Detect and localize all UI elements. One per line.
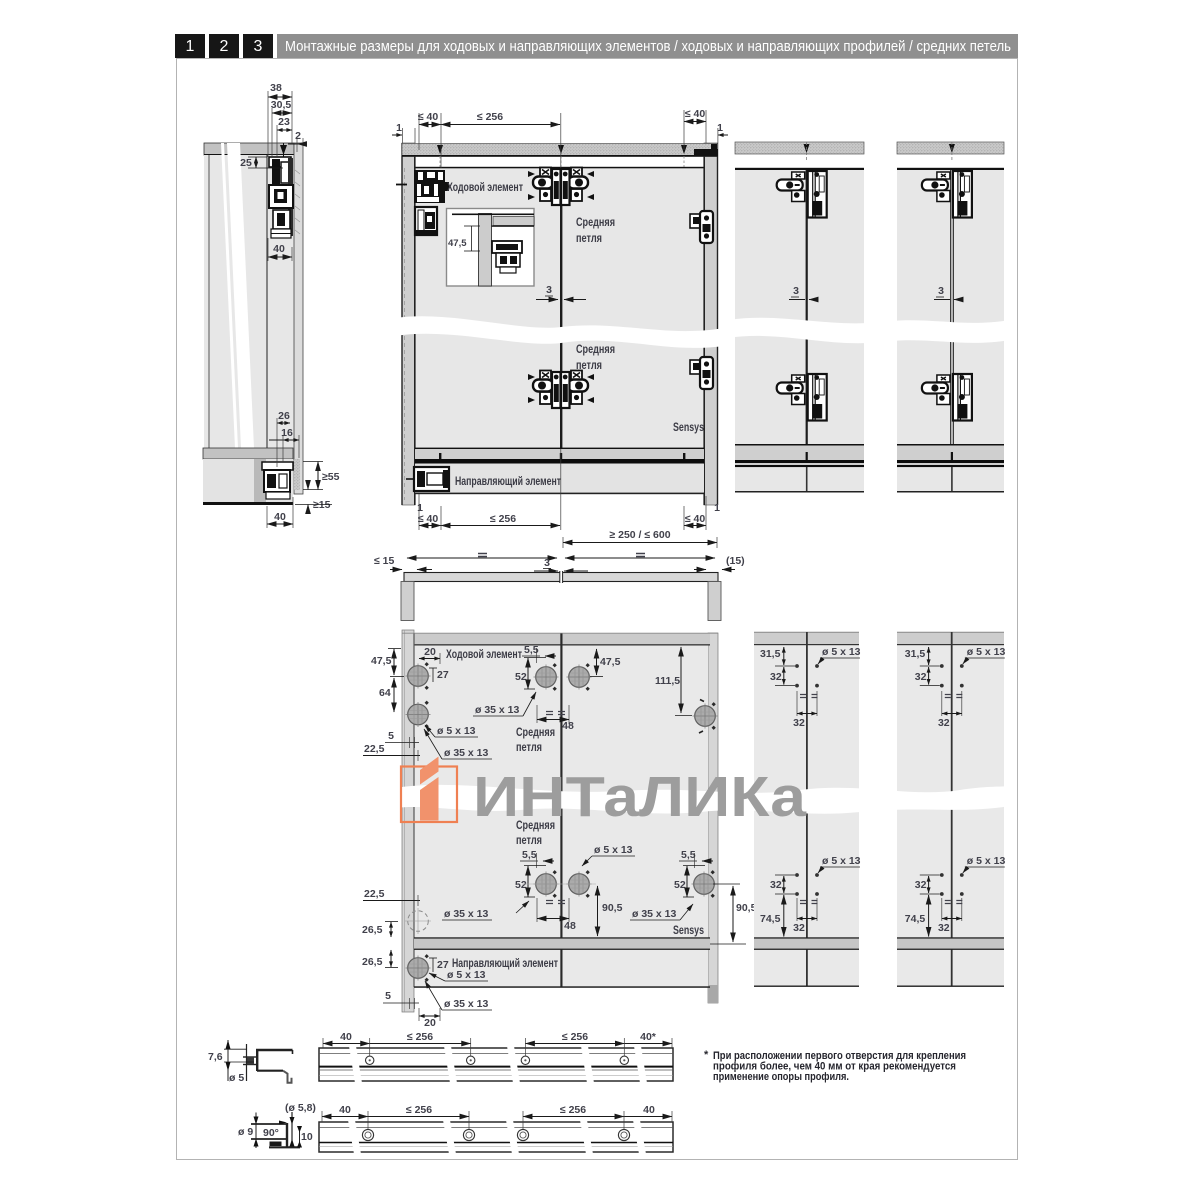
svg-text:≤ 256: ≤ 256 bbox=[407, 1031, 433, 1043]
svg-text:26,5: 26,5 bbox=[362, 956, 383, 968]
svg-text:47,5: 47,5 bbox=[371, 655, 392, 667]
svg-text:40: 40 bbox=[340, 1031, 352, 1043]
svg-text:22,5: 22,5 bbox=[364, 888, 385, 900]
svg-text:≤ 256: ≤ 256 bbox=[477, 111, 503, 123]
svg-text:7,6: 7,6 bbox=[208, 1051, 223, 1063]
svg-text:≤ 40: ≤ 40 bbox=[685, 513, 706, 525]
svg-text:ø 35 x 13: ø 35 x 13 bbox=[444, 747, 489, 759]
svg-text:ø 5: ø 5 bbox=[229, 1072, 244, 1084]
svg-text:3: 3 bbox=[544, 557, 550, 569]
svg-text:25: 25 bbox=[240, 157, 252, 169]
svg-text:52: 52 bbox=[674, 879, 686, 891]
svg-text:Средняя: Средняя bbox=[576, 215, 615, 229]
svg-text:90,5: 90,5 bbox=[602, 902, 623, 914]
svg-text:петля: петля bbox=[516, 740, 542, 754]
svg-text:22,5: 22,5 bbox=[364, 743, 385, 755]
svg-text:40: 40 bbox=[274, 511, 286, 523]
svg-text:петля: петля bbox=[516, 833, 542, 847]
svg-text:26,5: 26,5 bbox=[362, 924, 383, 936]
svg-text:90,5: 90,5 bbox=[736, 902, 757, 914]
svg-text:ø 9: ø 9 bbox=[238, 1126, 253, 1138]
svg-text:47,5: 47,5 bbox=[600, 656, 621, 668]
svg-text:20: 20 bbox=[424, 646, 436, 658]
svg-text:Sensys: Sensys bbox=[673, 420, 704, 434]
svg-text:3: 3 bbox=[546, 284, 552, 296]
svg-text:петля: петля bbox=[576, 231, 602, 245]
svg-text:≥55: ≥55 bbox=[322, 471, 340, 483]
svg-text:ø 35 x 13: ø 35 x 13 bbox=[444, 998, 489, 1010]
svg-text:≤ 40: ≤ 40 bbox=[418, 111, 439, 123]
svg-text:ø 5 x 13: ø 5 x 13 bbox=[447, 969, 486, 981]
svg-text:≤ 256: ≤ 256 bbox=[562, 1031, 588, 1043]
svg-text:Средняя: Средняя bbox=[576, 342, 615, 356]
svg-text:≤ 15: ≤ 15 bbox=[374, 555, 395, 567]
svg-text:(ø 5,8): (ø 5,8) bbox=[285, 1102, 316, 1114]
svg-text:петля: петля bbox=[576, 358, 602, 372]
svg-text:40: 40 bbox=[339, 1104, 351, 1116]
svg-text:ø 35 x 13: ø 35 x 13 bbox=[444, 908, 489, 920]
svg-text:2: 2 bbox=[220, 38, 229, 55]
svg-text:111,5: 111,5 bbox=[655, 675, 680, 687]
svg-text:ø 35 x 13: ø 35 x 13 bbox=[632, 908, 677, 920]
svg-text:Монтажные размеры для ходовых: Монтажные размеры для ходовых и направля… bbox=[285, 39, 1011, 55]
svg-text:2: 2 bbox=[295, 130, 301, 142]
svg-text:1: 1 bbox=[396, 122, 402, 134]
svg-text:38: 38 bbox=[270, 82, 282, 94]
svg-text:27: 27 bbox=[437, 669, 449, 681]
svg-text:20: 20 bbox=[424, 1017, 436, 1029]
svg-text:≤ 256: ≤ 256 bbox=[490, 513, 516, 525]
svg-text:47,5: 47,5 bbox=[448, 238, 467, 249]
svg-text:Средняя: Средняя bbox=[516, 725, 555, 739]
svg-text:5: 5 bbox=[388, 730, 394, 742]
svg-text:ИНТаЛИКа: ИНТаЛИКа bbox=[473, 765, 807, 829]
svg-text:Ходовой элемент: Ходовой элемент bbox=[447, 180, 523, 194]
svg-text:ø 5 x 13: ø 5 x 13 bbox=[594, 844, 633, 856]
svg-text:Sensys: Sensys bbox=[673, 923, 704, 937]
svg-text:Ходовой элемент: Ходовой элемент bbox=[446, 647, 522, 661]
svg-text:1: 1 bbox=[714, 502, 720, 514]
svg-text:3: 3 bbox=[254, 38, 263, 55]
svg-text:90°: 90° bbox=[263, 1127, 279, 1139]
svg-text:5,5: 5,5 bbox=[681, 849, 696, 861]
svg-text:3: 3 bbox=[793, 285, 799, 297]
svg-text:1: 1 bbox=[186, 38, 195, 55]
svg-text:5,5: 5,5 bbox=[522, 849, 537, 861]
svg-text:применение опоры профиля.: применение опоры профиля. bbox=[713, 1071, 849, 1083]
svg-text:ø 5 x 13: ø 5 x 13 bbox=[437, 725, 476, 737]
svg-text:52: 52 bbox=[515, 879, 527, 891]
svg-text:≤ 256: ≤ 256 bbox=[560, 1104, 586, 1116]
svg-text:23: 23 bbox=[278, 116, 290, 128]
svg-text:ø 35 x 13: ø 35 x 13 bbox=[475, 704, 520, 716]
svg-text:≥15: ≥15 bbox=[313, 499, 331, 511]
svg-text:3: 3 bbox=[938, 285, 944, 297]
svg-text:10: 10 bbox=[301, 1131, 313, 1143]
svg-text:Направляющий элемент: Направляющий элемент bbox=[455, 474, 561, 488]
svg-text:40*: 40* bbox=[640, 1031, 657, 1043]
svg-text:Направляющий элемент: Направляющий элемент bbox=[452, 956, 558, 970]
svg-text:5: 5 bbox=[385, 990, 391, 1002]
svg-text:≤ 40: ≤ 40 bbox=[418, 513, 439, 525]
svg-text:(15): (15) bbox=[726, 555, 745, 567]
svg-text:40: 40 bbox=[273, 243, 285, 255]
svg-text:≤ 256: ≤ 256 bbox=[406, 1104, 432, 1116]
svg-text:40: 40 bbox=[643, 1104, 655, 1116]
svg-text:48: 48 bbox=[562, 720, 574, 732]
svg-text:26: 26 bbox=[278, 410, 290, 422]
svg-text:52: 52 bbox=[515, 671, 527, 683]
svg-text:64: 64 bbox=[379, 687, 391, 699]
svg-text:≥ 250 / ≤ 600: ≥ 250 / ≤ 600 bbox=[609, 529, 670, 541]
svg-text:*: * bbox=[704, 1049, 709, 1061]
svg-text:≤ 40: ≤ 40 bbox=[685, 108, 706, 120]
svg-text:48: 48 bbox=[564, 920, 576, 932]
svg-text:30,5: 30,5 bbox=[271, 99, 292, 111]
